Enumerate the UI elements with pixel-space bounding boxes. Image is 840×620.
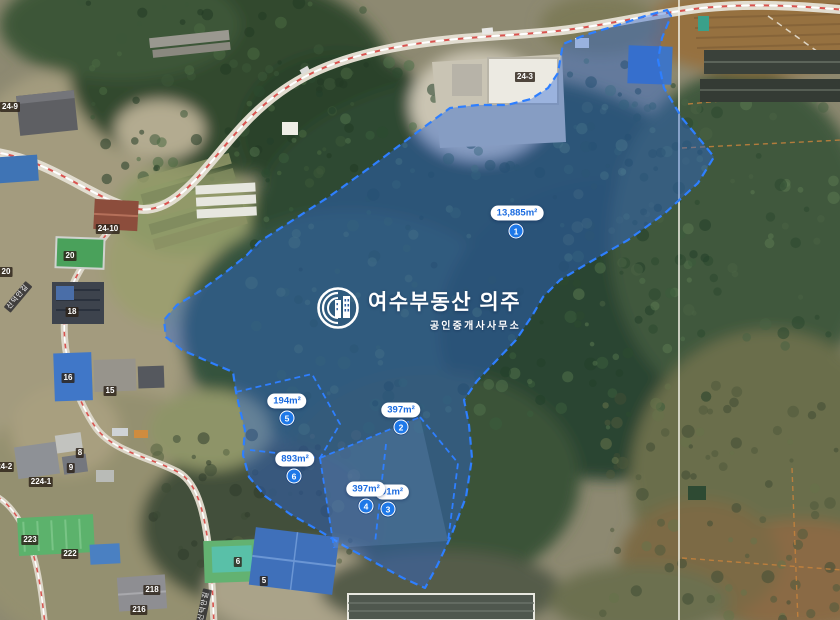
area-label-pill-6[interactable]: 893m² (275, 452, 314, 467)
parcel-number-badge-1[interactable]: 1 (509, 224, 524, 239)
parcel-number-badge-5[interactable]: 5 (280, 411, 295, 426)
parcel-number-badge-3[interactable]: 3 (381, 502, 396, 517)
area-label-pill-4[interactable]: 397m² (346, 482, 385, 497)
parcel-number-badge-4[interactable]: 4 (359, 499, 374, 514)
parcel-area-labels: 13,885m²1397m²291m²3397m²4194m²5893m²6 (0, 0, 840, 620)
parcel-number-badge-6[interactable]: 6 (287, 469, 302, 484)
parcel-number-badge-2[interactable]: 2 (394, 420, 409, 435)
area-label-pill-1[interactable]: 13,885m² (491, 206, 544, 221)
area-label-pill-2[interactable]: 397m² (381, 403, 420, 418)
area-label-pill-5[interactable]: 194m² (267, 394, 306, 409)
map-canvas[interactable]: 24-924-10202018161589224-2224-1223222218… (0, 0, 840, 620)
